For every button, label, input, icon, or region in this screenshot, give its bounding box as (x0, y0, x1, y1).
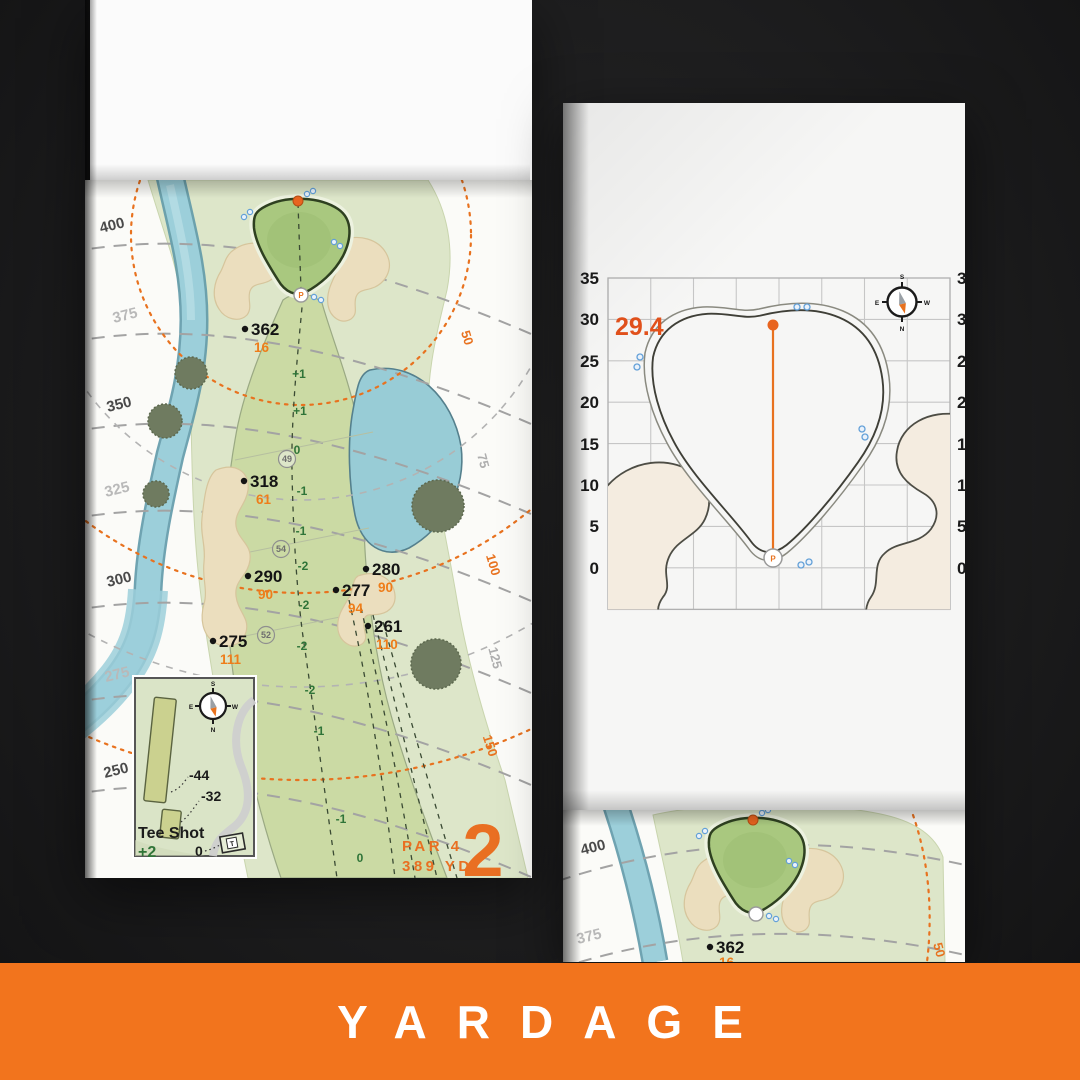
svg-text:-1: -1 (336, 812, 347, 826)
svg-text:N: N (211, 727, 216, 734)
svg-text:N: N (900, 326, 905, 333)
svg-text:-2: -2 (305, 683, 316, 697)
svg-text:15: 15 (957, 435, 965, 454)
svg-text:-32: -32 (201, 788, 221, 804)
svg-text:362: 362 (251, 320, 279, 339)
svg-text:-1: -1 (297, 484, 308, 498)
svg-text:277: 277 (342, 581, 370, 600)
svg-text:25: 25 (580, 352, 599, 371)
svg-text:52: 52 (261, 630, 271, 640)
svg-text:110: 110 (376, 637, 398, 652)
svg-text:S: S (211, 681, 216, 688)
svg-text:W: W (232, 704, 239, 711)
pin-icon (749, 907, 763, 921)
yardage-book-right: P 35 30 25 20 15 10 5 0 (563, 103, 965, 962)
svg-text:90: 90 (378, 580, 393, 595)
svg-text:20: 20 (580, 393, 599, 412)
svg-text:0: 0 (195, 843, 203, 859)
svg-text:90: 90 (258, 587, 273, 602)
pin-icon: P (294, 288, 308, 302)
svg-text:+1: +1 (293, 404, 307, 418)
svg-text:0: 0 (957, 559, 965, 578)
svg-text:-44: -44 (189, 767, 209, 783)
svg-text:25: 25 (957, 352, 965, 371)
svg-text:0: 0 (590, 559, 599, 578)
svg-text:61: 61 (256, 492, 272, 507)
svg-text:PAR 4: PAR 4 (402, 838, 463, 855)
svg-text:111: 111 (220, 652, 242, 667)
svg-text:30: 30 (957, 310, 965, 329)
svg-text:15: 15 (580, 435, 599, 454)
svg-text:318: 318 (250, 472, 278, 491)
svg-text:280: 280 (372, 560, 400, 579)
target-dot (748, 815, 758, 825)
svg-text:54: 54 (276, 544, 286, 554)
tee-shot-inset: -44 -32 Tee Shot +2 0 T (132, 675, 257, 861)
svg-text:10: 10 (580, 476, 599, 495)
svg-text:49: 49 (282, 454, 292, 464)
svg-text:5: 5 (590, 517, 599, 536)
svg-text:E: E (189, 704, 194, 711)
svg-text:261: 261 (374, 617, 402, 636)
svg-text:Tee Shot: Tee Shot (138, 825, 205, 842)
svg-text:0: 0 (357, 851, 364, 865)
yardage-banner: YARDAGE (0, 963, 1080, 1080)
svg-text:-2: -2 (298, 559, 309, 573)
yardage-book-left: +1 +1 0 -1 -1 -2 -2 -2 -2 -1 -1 0 49 (85, 0, 532, 878)
green-detail-page: P 35 30 25 20 15 10 5 0 (563, 103, 965, 962)
svg-text:+2: +2 (138, 844, 156, 861)
svg-text:10: 10 (957, 476, 965, 495)
svg-text:16: 16 (254, 340, 270, 355)
svg-text:P: P (770, 555, 776, 564)
hole-map-page: +1 +1 0 -1 -1 -2 -2 -2 -2 -1 -1 0 49 (85, 0, 532, 878)
svg-text:-1: -1 (296, 524, 307, 538)
svg-text:W: W (924, 300, 931, 307)
svg-text:-2: -2 (297, 639, 308, 653)
svg-text:S: S (900, 274, 905, 281)
svg-text:35: 35 (957, 269, 965, 288)
svg-text:35: 35 (580, 269, 599, 288)
svg-text:290: 290 (254, 567, 282, 586)
svg-text:-1: -1 (314, 724, 325, 738)
svg-text:30: 30 (580, 310, 599, 329)
svg-text:275: 275 (219, 632, 247, 651)
svg-text:5: 5 (957, 517, 965, 536)
svg-text:P: P (298, 291, 304, 300)
tee-marker-icon: T (220, 833, 245, 853)
target-dot (293, 196, 303, 206)
pin-icon: P (764, 549, 782, 567)
svg-text:2: 2 (462, 809, 503, 878)
dark-backdrop: +1 +1 0 -1 -1 -2 -2 -2 -2 -1 -1 0 49 (0, 0, 1080, 1080)
svg-text:20: 20 (957, 393, 965, 412)
svg-text:+1: +1 (292, 367, 306, 381)
svg-text:-2: -2 (299, 598, 310, 612)
svg-text:E: E (875, 300, 880, 307)
svg-text:16: 16 (719, 955, 735, 962)
green-depth-value: 29.4 (615, 313, 664, 341)
banner-title: YARDAGE (307, 995, 773, 1049)
svg-text:94: 94 (348, 601, 364, 616)
